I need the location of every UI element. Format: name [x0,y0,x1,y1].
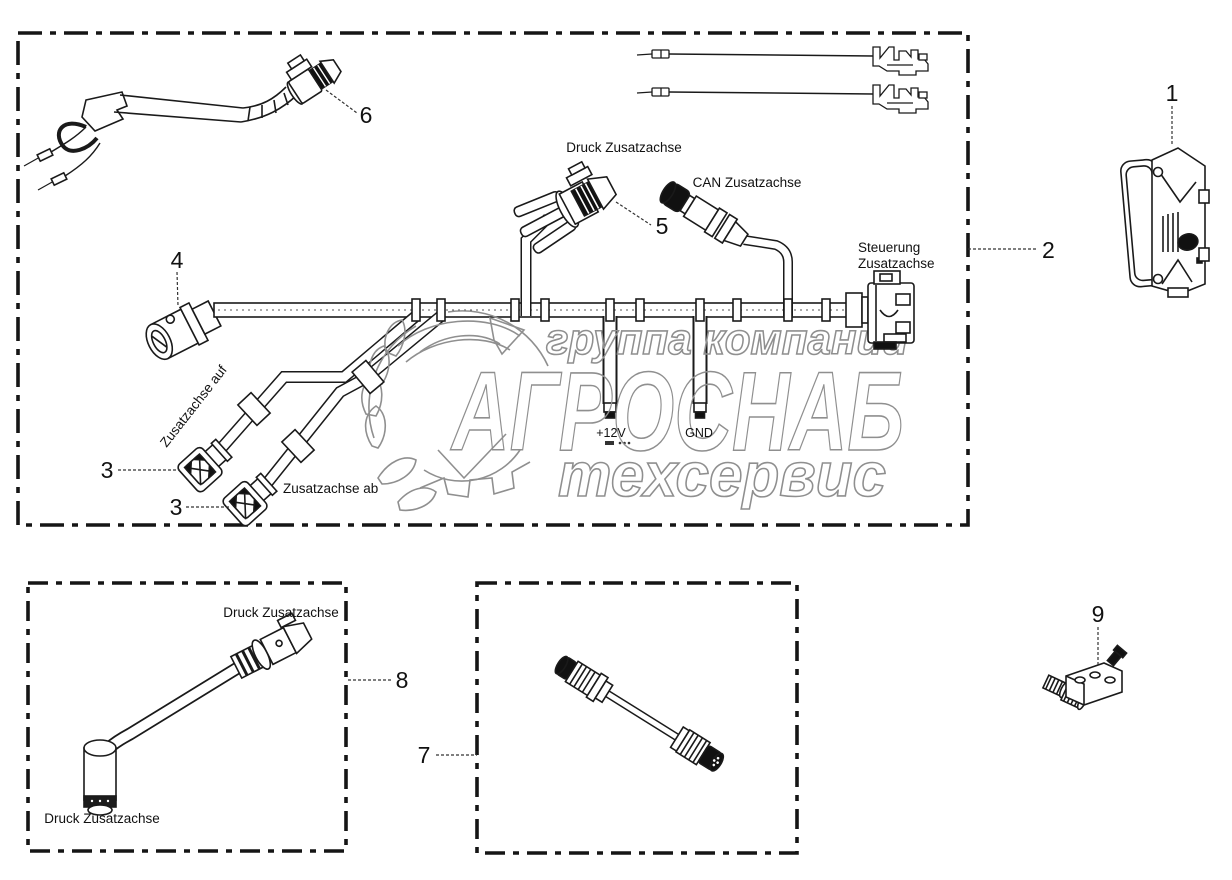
callout-part4: 4 [171,247,184,273]
part7-drawing [551,651,728,776]
label-druck8-bottom: Druck Zusatzachse [44,811,160,826]
label-gnd: GND [685,426,713,440]
parts-diagram-page: группа компаний АГРОСНАБ техсервис [0,0,1232,880]
part6-cable-drawing [24,41,344,190]
label-steuerung-line2: Zusatzachse [858,256,935,271]
leader-part4 [177,272,178,306]
label-druck8-top: Druck Zusatzachse [223,605,339,620]
callout-part6: 6 [360,102,373,128]
label-steuerung-line1: Steuerung [858,240,920,255]
label-zusatzachse-auf: Zusatzachse auf [157,362,230,449]
leader-part6 [326,90,357,113]
part7-box [477,583,797,853]
watermark: группа компаний АГРОСНАБ техсервис [362,311,908,510]
part4-connector-drawing [140,295,224,366]
callout-part3a: 3 [101,457,114,483]
label-druck-main: Druck Zusatzachse [566,140,682,155]
leader-part5 [616,202,651,225]
callout-part3b: 3 [170,494,183,520]
watermark-line3: техсервис [558,441,886,510]
label-can: CAN Zusatzachse [693,175,802,190]
callout-part1: 1 [1166,80,1179,106]
terminal-wire-1 [637,47,928,75]
part9-drawing [1042,645,1126,710]
terminal-wire-2 [637,85,928,113]
label-plus12v: +12V [596,426,626,440]
callout-part2: 2 [1042,237,1055,263]
callout-part5: 5 [656,213,669,239]
callout-part8: 8 [396,667,409,693]
callout-part7: 7 [418,742,431,768]
part1-module-drawing [1120,148,1209,297]
label-zusatzachse-ab: Zusatzachse ab [283,481,378,496]
callout-part9: 9 [1092,601,1105,627]
parts-diagram-canvas: группа компаний АГРОСНАБ техсервис [0,0,1232,880]
part8-drawing [84,611,315,815]
